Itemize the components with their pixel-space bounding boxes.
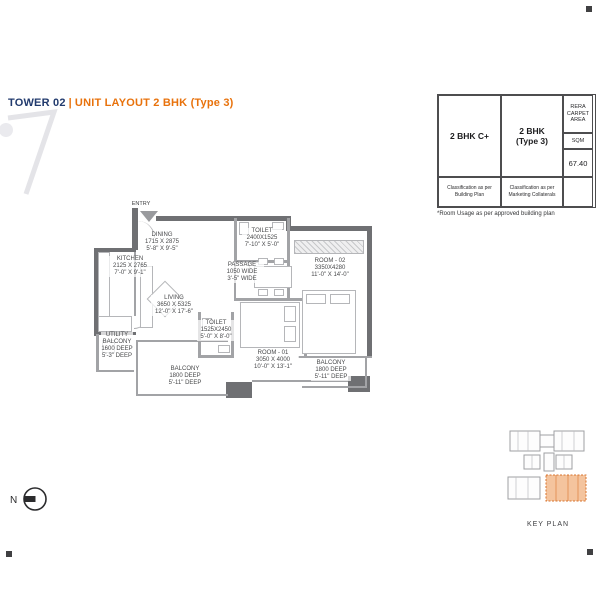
key-plan: KEY PLAN [500, 426, 596, 528]
wall-segment [198, 355, 234, 358]
room-label-utility-balcony: UTILITY BALCONY1600 DEEP5'-3" DEEP [101, 332, 133, 360]
area-table-col1-footer: Classification as per Building Plan [438, 177, 501, 207]
north-letter: N [10, 495, 17, 506]
room-label-balcony-right: BALCONY1800 DEEP5'-11" DEEP [311, 360, 351, 381]
corner-mark [586, 6, 592, 12]
room-label-dining: DINING1715 X 28755'-8" X 9'-5" [138, 232, 186, 253]
dining-chair [258, 289, 268, 296]
wall-segment [96, 334, 99, 372]
bed-pillow [284, 306, 296, 322]
area-table-col2-label: 2 BHK (Type 3) [501, 95, 563, 177]
room-label-toilet-top: TOILET2400X15257'-10" X 5'-0" [242, 228, 282, 249]
bed-pillow [330, 294, 350, 304]
area-table: 2 BHK C+ 2 BHK (Type 3) RERA CARPET AREA… [437, 94, 596, 208]
title-separator: | [66, 97, 75, 109]
floor-plan: ENTRY [88, 198, 380, 410]
entry-label: ENTRY [124, 201, 158, 207]
wardrobe-room02 [294, 240, 364, 254]
room-label-passage: PASSAGE1050 WIDE3'-5" WIDE [220, 262, 264, 283]
page-title: TOWER 02|UNIT LAYOUT 2 BHK (Type 3) [8, 97, 234, 109]
balcony-rail [365, 356, 367, 388]
wall-segment [156, 216, 290, 221]
key-plan-label: KEY PLAN [500, 521, 596, 528]
balcony-rail [96, 370, 134, 372]
window-line [298, 356, 372, 358]
room-label-living: LIVING3650 X 532512'-0" X 17'-6" [151, 295, 197, 316]
wall-segment [234, 298, 306, 301]
balcony-rail [136, 394, 228, 396]
dining-chair [274, 289, 284, 296]
key-plan-highlight-unit [546, 475, 586, 501]
corner-mark [6, 551, 12, 557]
wall-pier [226, 382, 252, 398]
dining-chair [274, 258, 284, 265]
entry-arrow-icon [140, 211, 158, 222]
room-usage-footnote: *Room Usage as per approved building pla… [437, 211, 555, 217]
corner-mark [587, 549, 593, 555]
room-label-balcony-left: BALCONY1800 DEEP5'-11" DEEP [165, 366, 205, 387]
area-table-unit: SQM [563, 133, 593, 149]
bed-pillow [306, 294, 326, 304]
wall-segment [367, 226, 372, 358]
wall-segment [286, 226, 372, 231]
balcony-rail [136, 340, 138, 396]
title-tower: TOWER 02 [8, 97, 66, 109]
title-unit-layout: UNIT LAYOUT 2 BHK (Type 3) [75, 97, 234, 109]
room-label-kitchen: KITCHEN2125 X 27657'-0" X 9'-1" [108, 256, 152, 277]
area-table-empty-cell [563, 177, 593, 207]
kitchen-counter [98, 316, 132, 332]
area-table-col2-footer: Classification as per Marketing Collater… [501, 177, 563, 207]
room-label-room02: ROOM - 023350X428011'-0" X 14'-0" [304, 258, 356, 279]
area-table-value: 67.40 [563, 149, 593, 177]
balcony-rail [302, 386, 367, 388]
key-plan-drawing [500, 426, 596, 514]
bed-pillow [284, 326, 296, 342]
room-label-toilet-mid: TOILET1525X24505'-0" X 8'-0" [197, 320, 235, 341]
toilet-basin [218, 345, 230, 353]
wall-segment [234, 218, 237, 263]
area-table-col1-label: 2 BHK C+ [438, 95, 501, 177]
room-label-room01: ROOM - 013050 X 400010'-0" X 13'-1" [247, 350, 299, 371]
logo-watermark [0, 108, 80, 198]
north-arrow: N [8, 484, 52, 521]
area-table-rera-header: RERA CARPET AREA [563, 95, 593, 133]
